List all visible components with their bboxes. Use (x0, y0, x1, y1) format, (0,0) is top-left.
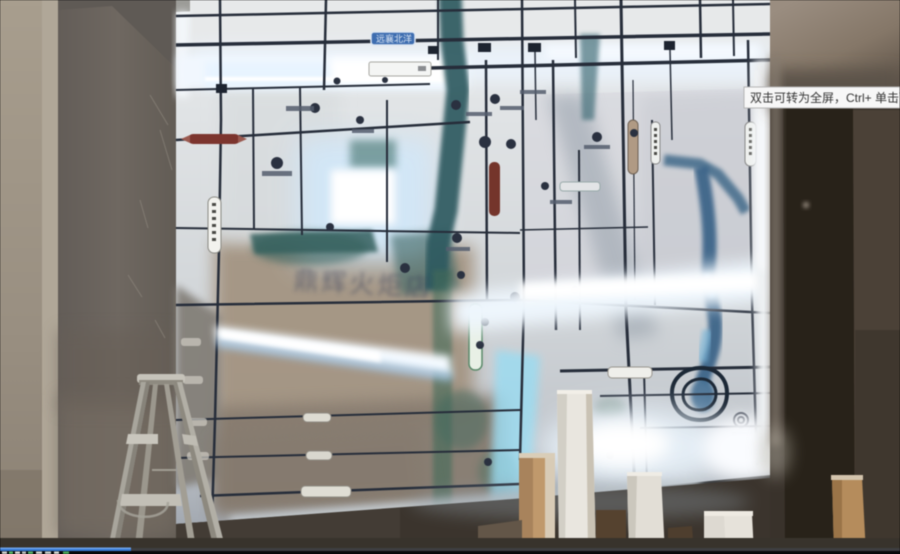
svg-text:双击可转为全屏，Ctrl+ 单击可转为: 双击可转为全屏，Ctrl+ 单击可转为 (750, 90, 900, 105)
svg-text:远襄北洋: 远襄北洋 (376, 33, 412, 44)
